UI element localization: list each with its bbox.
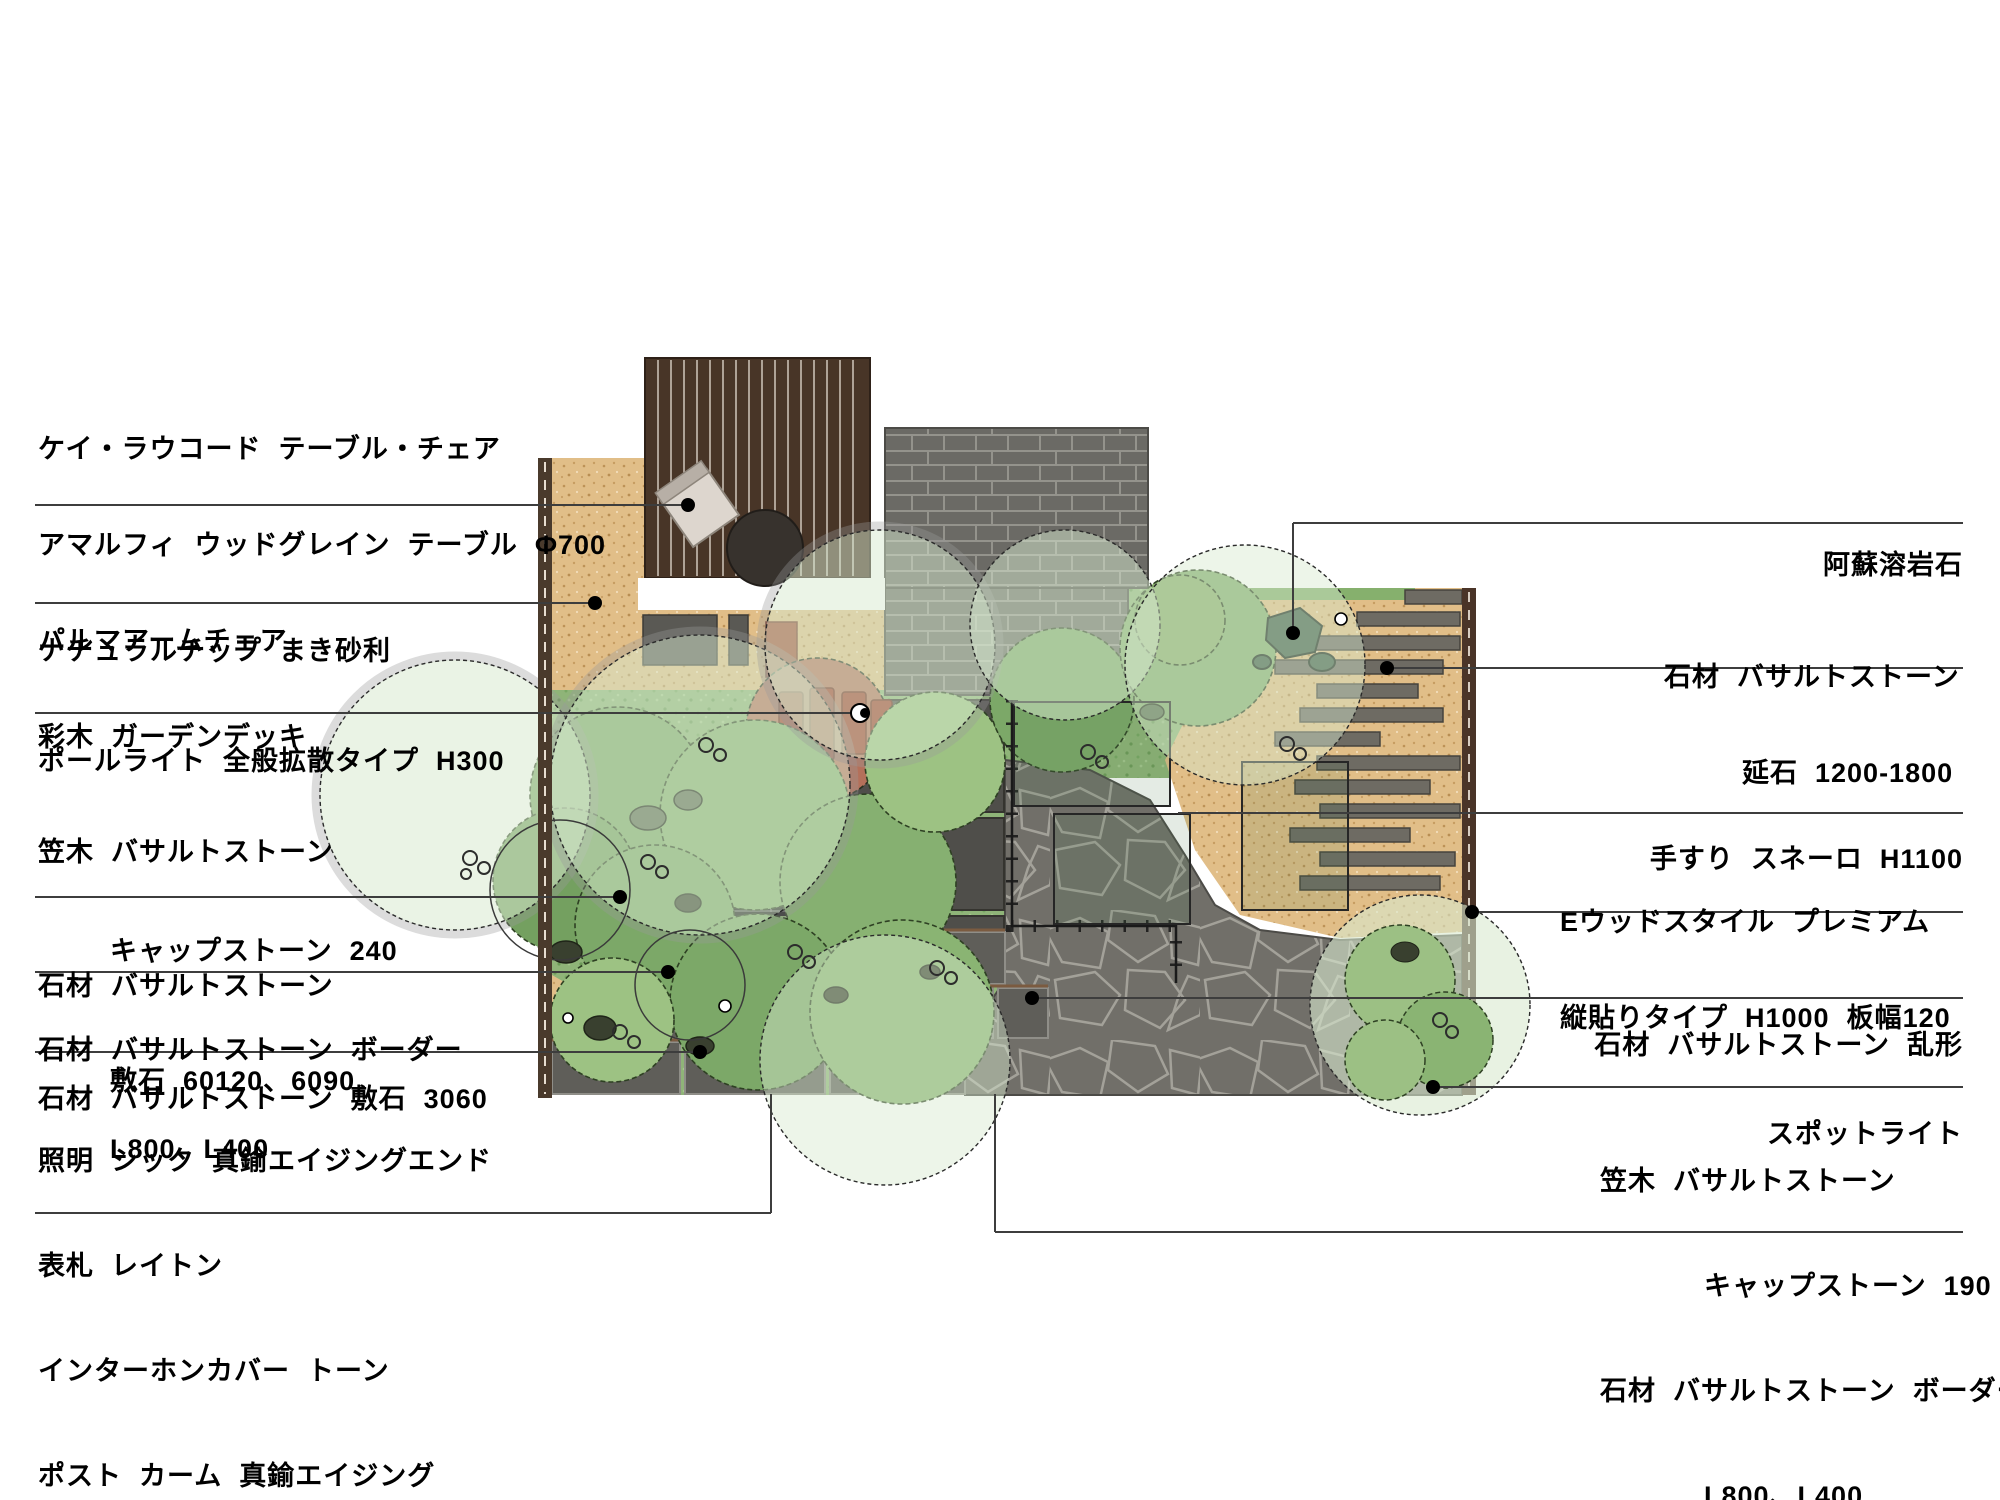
- label-line: 石材 バサルトストーン ボーダー: [1600, 1374, 2000, 1409]
- label-natural-chip: ナチュラルチップ まき砂利: [38, 572, 391, 699]
- pole-light-icon: [851, 704, 870, 722]
- label-line: 笠木 バサルトストーン: [38, 836, 463, 869]
- label-line: ケイ・ラウコード テーブル・チェア: [38, 432, 606, 466]
- label-line: アマルフィ ウッドグレイン テーブル Φ700: [38, 528, 606, 562]
- shrub-bottom-right: [1310, 895, 1530, 1115]
- label-line: ナチュラルチップ まき砂利: [38, 634, 391, 668]
- label-line: 笠木 バサルトストーン: [1600, 1164, 2000, 1199]
- label-line: L800、L400: [1600, 1479, 2000, 1500]
- label-line: Eウッドスタイル プレミアム: [1560, 905, 1951, 939]
- label-line: 表札 レイトン: [38, 1249, 492, 1284]
- label-aso-lava-rock: 阿蘇溶岩石: [1823, 486, 1963, 613]
- label-line: キャップストーン 190: [1600, 1269, 2000, 1304]
- label-lighting-post-group: 照明 シック 真鍮エイジングエンド 表札 レイトン インターホンカバー トーン …: [38, 1074, 492, 1500]
- garden-plan-page: ケイ・ラウコード テーブル・チェア アマルフィ ウッドグレイン テーブル Φ70…: [0, 0, 2000, 1500]
- label-kasagi-capstone-190: 笠木 バサルトストーン キャップストーン 190 石材 バサルトストーン ボーダ…: [1600, 1094, 2000, 1500]
- label-line: 石材 バサルトストーン: [1664, 660, 1960, 694]
- label-line: 石材 バサルトストーン: [38, 970, 355, 1003]
- label-line: 照明 シック 真鍮エイジングエンド: [38, 1144, 492, 1179]
- label-line: ポスト カーム 真鍮エイジング: [38, 1459, 492, 1494]
- label-line: 阿蘇溶岩石: [1823, 548, 1963, 582]
- label-line: インターホンカバー トーン: [38, 1354, 492, 1389]
